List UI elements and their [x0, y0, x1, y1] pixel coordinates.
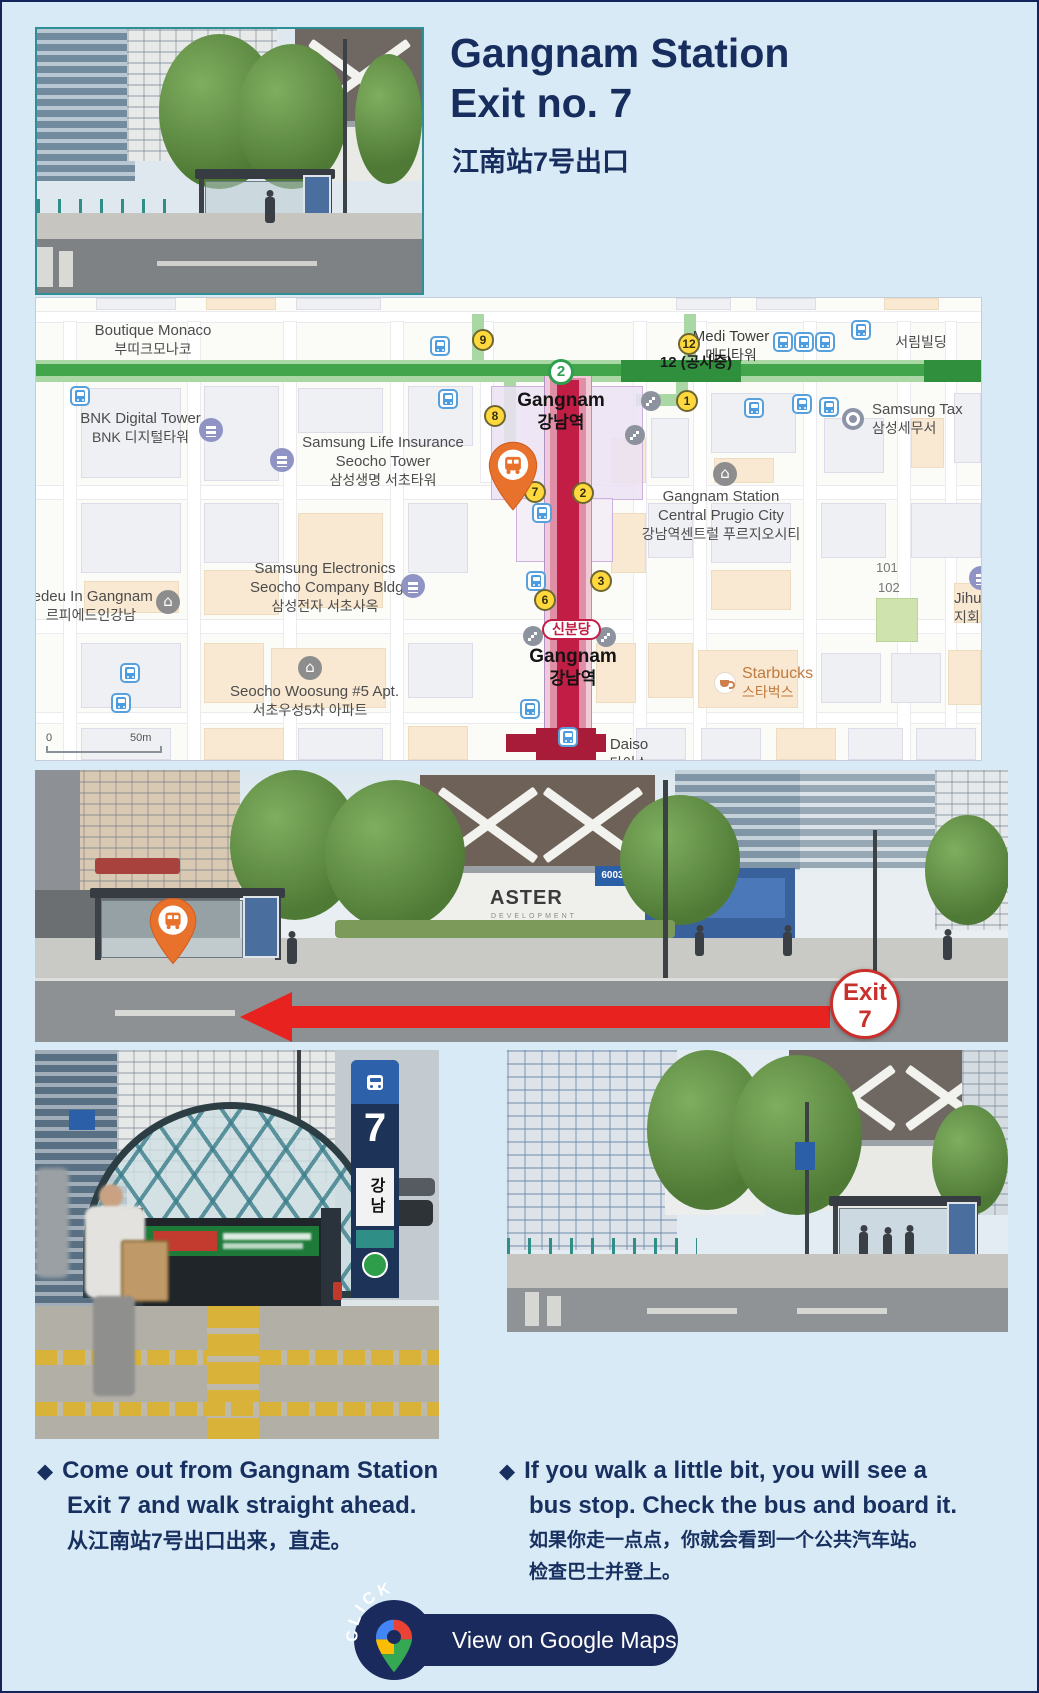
bullet-icon: ◆ — [499, 1460, 515, 1483]
map-building — [96, 298, 176, 310]
coffee-icon — [714, 672, 736, 694]
map-building — [296, 298, 381, 310]
subway-entrance-icon — [625, 425, 645, 445]
map-exit-badge-6: 6 — [534, 589, 556, 611]
lane-line — [157, 261, 317, 266]
pedestrian — [883, 1234, 892, 1256]
building-glass — [800, 770, 935, 868]
construction-wall-title: ASTER — [490, 887, 563, 910]
exit7-sign-pillar: 7 강남 — [351, 1060, 399, 1298]
map-line2-badge: 2 — [548, 359, 574, 385]
map-label-gangnam-top: Gangnam 강남역 — [496, 390, 626, 433]
bus-stop-icon — [819, 397, 839, 417]
crosswalk-stripe — [547, 1296, 561, 1326]
map-label-daiso: Daiso 다이소 — [584, 736, 674, 761]
bus-stop-icon — [815, 332, 835, 352]
bus-stop-icon — [792, 394, 812, 414]
bus-shelter-ad-panel — [947, 1202, 977, 1262]
house-icon: ⌂ — [713, 462, 737, 486]
hedge — [335, 920, 675, 938]
building — [37, 29, 135, 181]
pedestrian-blurred — [63, 1178, 173, 1413]
pedestrian — [859, 1232, 868, 1256]
bus-shelter-ad-panel — [243, 896, 279, 958]
map-building — [711, 570, 791, 610]
map-building — [204, 728, 284, 760]
pedestrian — [943, 936, 952, 960]
photo-bus-stop-walk — [507, 1050, 1008, 1332]
wayfinding-guide-page: Gangnam Station Exit no. 7 江南站7号出口 Bouti… — [0, 0, 1039, 1693]
bus-stop-icon — [773, 332, 793, 352]
building-icon — [270, 448, 294, 472]
instruction-left-en2: Exit 7 and walk straight ahead. — [67, 1489, 492, 1523]
map-building — [298, 728, 383, 760]
pedestrian-blurred — [35, 1168, 69, 1278]
map-label-lepiedeu: iedeu In Gangnam 르피에드인강남 — [35, 588, 166, 624]
building-sign — [69, 1110, 95, 1130]
map-label-seorim: 서림빌딩 — [866, 334, 976, 352]
map-building — [821, 503, 886, 558]
crosswalk-stripe — [525, 1292, 539, 1326]
page-title: Gangnam Station Exit no. 7 — [450, 28, 789, 128]
map-building — [81, 728, 171, 760]
map-exit-badge-1: 1 — [676, 390, 698, 412]
map-building — [408, 503, 468, 573]
awning — [95, 858, 180, 874]
instruction-right-zh2: 检查巴士并登上。 — [529, 1558, 1009, 1587]
map-exit-badge-8: 8 — [484, 405, 506, 427]
map-label-samsung-electronics: Samsung Electronics Seocho Company Bldg.… — [250, 560, 400, 615]
map-sinbundang-core — [557, 380, 579, 760]
map-building — [701, 728, 761, 760]
map-scale-50m: 50m — [130, 732, 151, 744]
map-label-seocho-woosung: Seocho Woosung #5 Apt. 서초우성5차 아파트 — [230, 683, 390, 719]
page-title-line2: Exit no. 7 — [450, 78, 789, 128]
house-icon: ⌂ — [156, 590, 180, 614]
sidewalk — [37, 213, 422, 239]
map-label-102: 102 — [878, 580, 900, 595]
instruction-right-en2: bus stop. Check the bus and board it. — [529, 1489, 1009, 1523]
map-label-gangnam-bottom: Gangnam 강남역 — [508, 646, 638, 689]
map-exit-badge-12: 12 — [678, 333, 700, 355]
sign-strip — [356, 1230, 394, 1248]
tree — [925, 815, 1008, 925]
bus-stop-icon — [70, 386, 90, 406]
fire-extinguisher — [333, 1282, 342, 1300]
map-building — [206, 298, 276, 310]
map-building — [776, 728, 836, 760]
bus-stop-icon — [744, 398, 764, 418]
map-building — [848, 728, 903, 760]
map-building — [756, 298, 816, 310]
map-road — [188, 322, 200, 760]
pedestrian — [905, 1232, 914, 1256]
map-label-boutique-monaco: Boutique Monaco 부띠크모나코 — [63, 322, 243, 358]
house-icon: ⌂ — [298, 656, 322, 680]
map-building — [884, 298, 939, 310]
map-building — [408, 726, 468, 760]
map-building — [916, 728, 976, 760]
bus-icon — [367, 1075, 383, 1090]
map-building — [298, 388, 383, 433]
click-arc-label: CLICK — [344, 1584, 460, 1656]
bus-stop-icon — [526, 571, 546, 591]
map-road — [36, 713, 981, 723]
bus-stop-photo-pin-icon — [147, 896, 199, 971]
lane-line — [647, 1308, 737, 1314]
tree — [620, 795, 740, 925]
map-building — [948, 650, 981, 705]
google-maps-pin-circle[interactable]: CLICK — [354, 1600, 434, 1680]
pedestrian — [695, 932, 704, 956]
building-icon — [199, 418, 223, 442]
subway-entrance-icon — [641, 391, 661, 411]
sign-cap — [351, 1060, 399, 1104]
instruction-left: ◆Come out from Gangnam Station Exit 7 an… — [37, 1454, 492, 1557]
map-building — [648, 643, 693, 698]
map-building — [911, 503, 981, 558]
walk-direction-arrow-head — [240, 992, 292, 1042]
photo-exit7-entrance: 7 강남 — [35, 1050, 439, 1439]
road — [507, 1288, 1008, 1332]
station-name-sign: 강남 — [356, 1168, 394, 1226]
map-line2-segment — [924, 360, 981, 382]
bullet-icon: ◆ — [37, 1460, 53, 1483]
tree — [732, 1055, 862, 1215]
instruction-left-zh: 从江南站7号出口出来，直走。 — [67, 1526, 492, 1557]
bus-stop-icon — [438, 389, 458, 409]
map-label-central-prugio: Gangnam Station Central Prugio City 강남역센… — [636, 488, 806, 543]
map-road — [36, 620, 981, 633]
tree — [237, 44, 347, 189]
walk-direction-arrow — [290, 1006, 830, 1028]
map-exit-badge-9: 9 — [472, 329, 494, 351]
bus-stop-icon — [430, 336, 450, 356]
map-building — [81, 503, 181, 573]
map-building — [891, 653, 941, 703]
instruction-right: ◆If you walk a little bit, you will see … — [499, 1454, 1009, 1587]
map-label-jihui: Jihui Bl 지회빌 — [954, 590, 982, 626]
office-icon — [842, 408, 864, 430]
instruction-right-en1: If you walk a little bit, you will see a — [524, 1457, 927, 1484]
map-exit-badge-3: 3 — [590, 570, 612, 592]
map-scale-zero: 0 — [46, 732, 52, 744]
banner-text-blur — [223, 1233, 311, 1240]
click-text: CLICK — [344, 1579, 396, 1642]
photo-street-walk: ASTER DEVELOPMENT 6003 5040 — [35, 770, 1008, 1042]
page-subtitle-zh: 江南站7号出口 — [452, 140, 629, 179]
exit-7-badge: Exit 7 — [830, 969, 900, 1039]
lane-line — [115, 1010, 235, 1016]
map-sinbundang-badge: 신분당 — [542, 619, 601, 640]
sidewalk — [507, 1254, 1008, 1288]
subway-entrance-icon — [523, 626, 543, 646]
building — [35, 770, 80, 900]
street-pole — [663, 780, 668, 978]
bus-stop-icon — [520, 699, 540, 719]
crosswalk-stripe — [59, 251, 73, 287]
map-road — [36, 312, 981, 322]
map-building — [676, 298, 731, 310]
instruction-left-en1: Come out from Gangnam Station — [62, 1457, 438, 1484]
map-building — [408, 643, 473, 698]
bus-stop-icon — [558, 727, 578, 747]
pedestrian — [783, 932, 792, 956]
instruction-right-zh1: 如果你走一点点，你就会看到一个公共汽车站。 — [529, 1526, 1009, 1555]
route-map: Boutique Monaco 부띠크모나코 BNK Digital Tower… — [35, 297, 982, 761]
pedestrian — [287, 938, 297, 964]
street-pole — [805, 1102, 809, 1262]
road — [37, 239, 422, 293]
map-exit-badge-2: 2 — [572, 482, 594, 504]
map-label-samsung-tax: Samsung Tax 삼성세무서 — [872, 401, 982, 437]
banner-text-blur — [223, 1243, 303, 1249]
map-label-samsung-life: Samsung Life Insurance Seocho Tower 삼성생명… — [298, 434, 468, 489]
construction-wall-subtitle: DEVELOPMENT — [491, 913, 577, 920]
map-line2-core — [36, 364, 981, 376]
tactile-paving — [207, 1306, 259, 1439]
map-label-101: 101 — [876, 560, 898, 575]
tree — [355, 54, 422, 184]
page-title-line1: Gangnam Station — [450, 28, 789, 78]
map-label-starbucks: Starbucks 스타벅스 — [742, 664, 842, 702]
map-building — [651, 418, 689, 478]
map-scale-bar — [46, 746, 162, 753]
line-badge — [362, 1252, 388, 1278]
google-maps-button[interactable]: View on Google Maps CLICK — [354, 1590, 684, 1690]
pedestrian — [265, 197, 275, 223]
map-building — [876, 598, 918, 642]
bus-stop-icon — [111, 693, 131, 713]
photo-bus-stop-overview — [35, 27, 424, 295]
tree — [325, 780, 465, 930]
map-building — [204, 503, 279, 563]
bus-stop-map-pin-icon — [486, 440, 540, 517]
svg-text:CLICK: CLICK — [344, 1579, 396, 1642]
street-lamp — [297, 1050, 301, 1120]
street-pole — [343, 39, 347, 234]
map-label-bnk-digital-tower: BNK Digital Tower BNK 디지털타워 — [68, 410, 213, 446]
building-icon — [401, 574, 425, 598]
bus-stop-icon — [851, 320, 871, 340]
bus-stop-icon — [794, 332, 814, 352]
street-pole — [873, 830, 877, 978]
bus-stop-icon — [120, 663, 140, 683]
lane-line — [797, 1308, 887, 1314]
exit-number-sign: 7 — [351, 1106, 399, 1151]
map-label-construction: 12 (공사중) — [636, 354, 756, 373]
pole-sign — [795, 1142, 815, 1170]
crosswalk-stripe — [37, 247, 53, 287]
